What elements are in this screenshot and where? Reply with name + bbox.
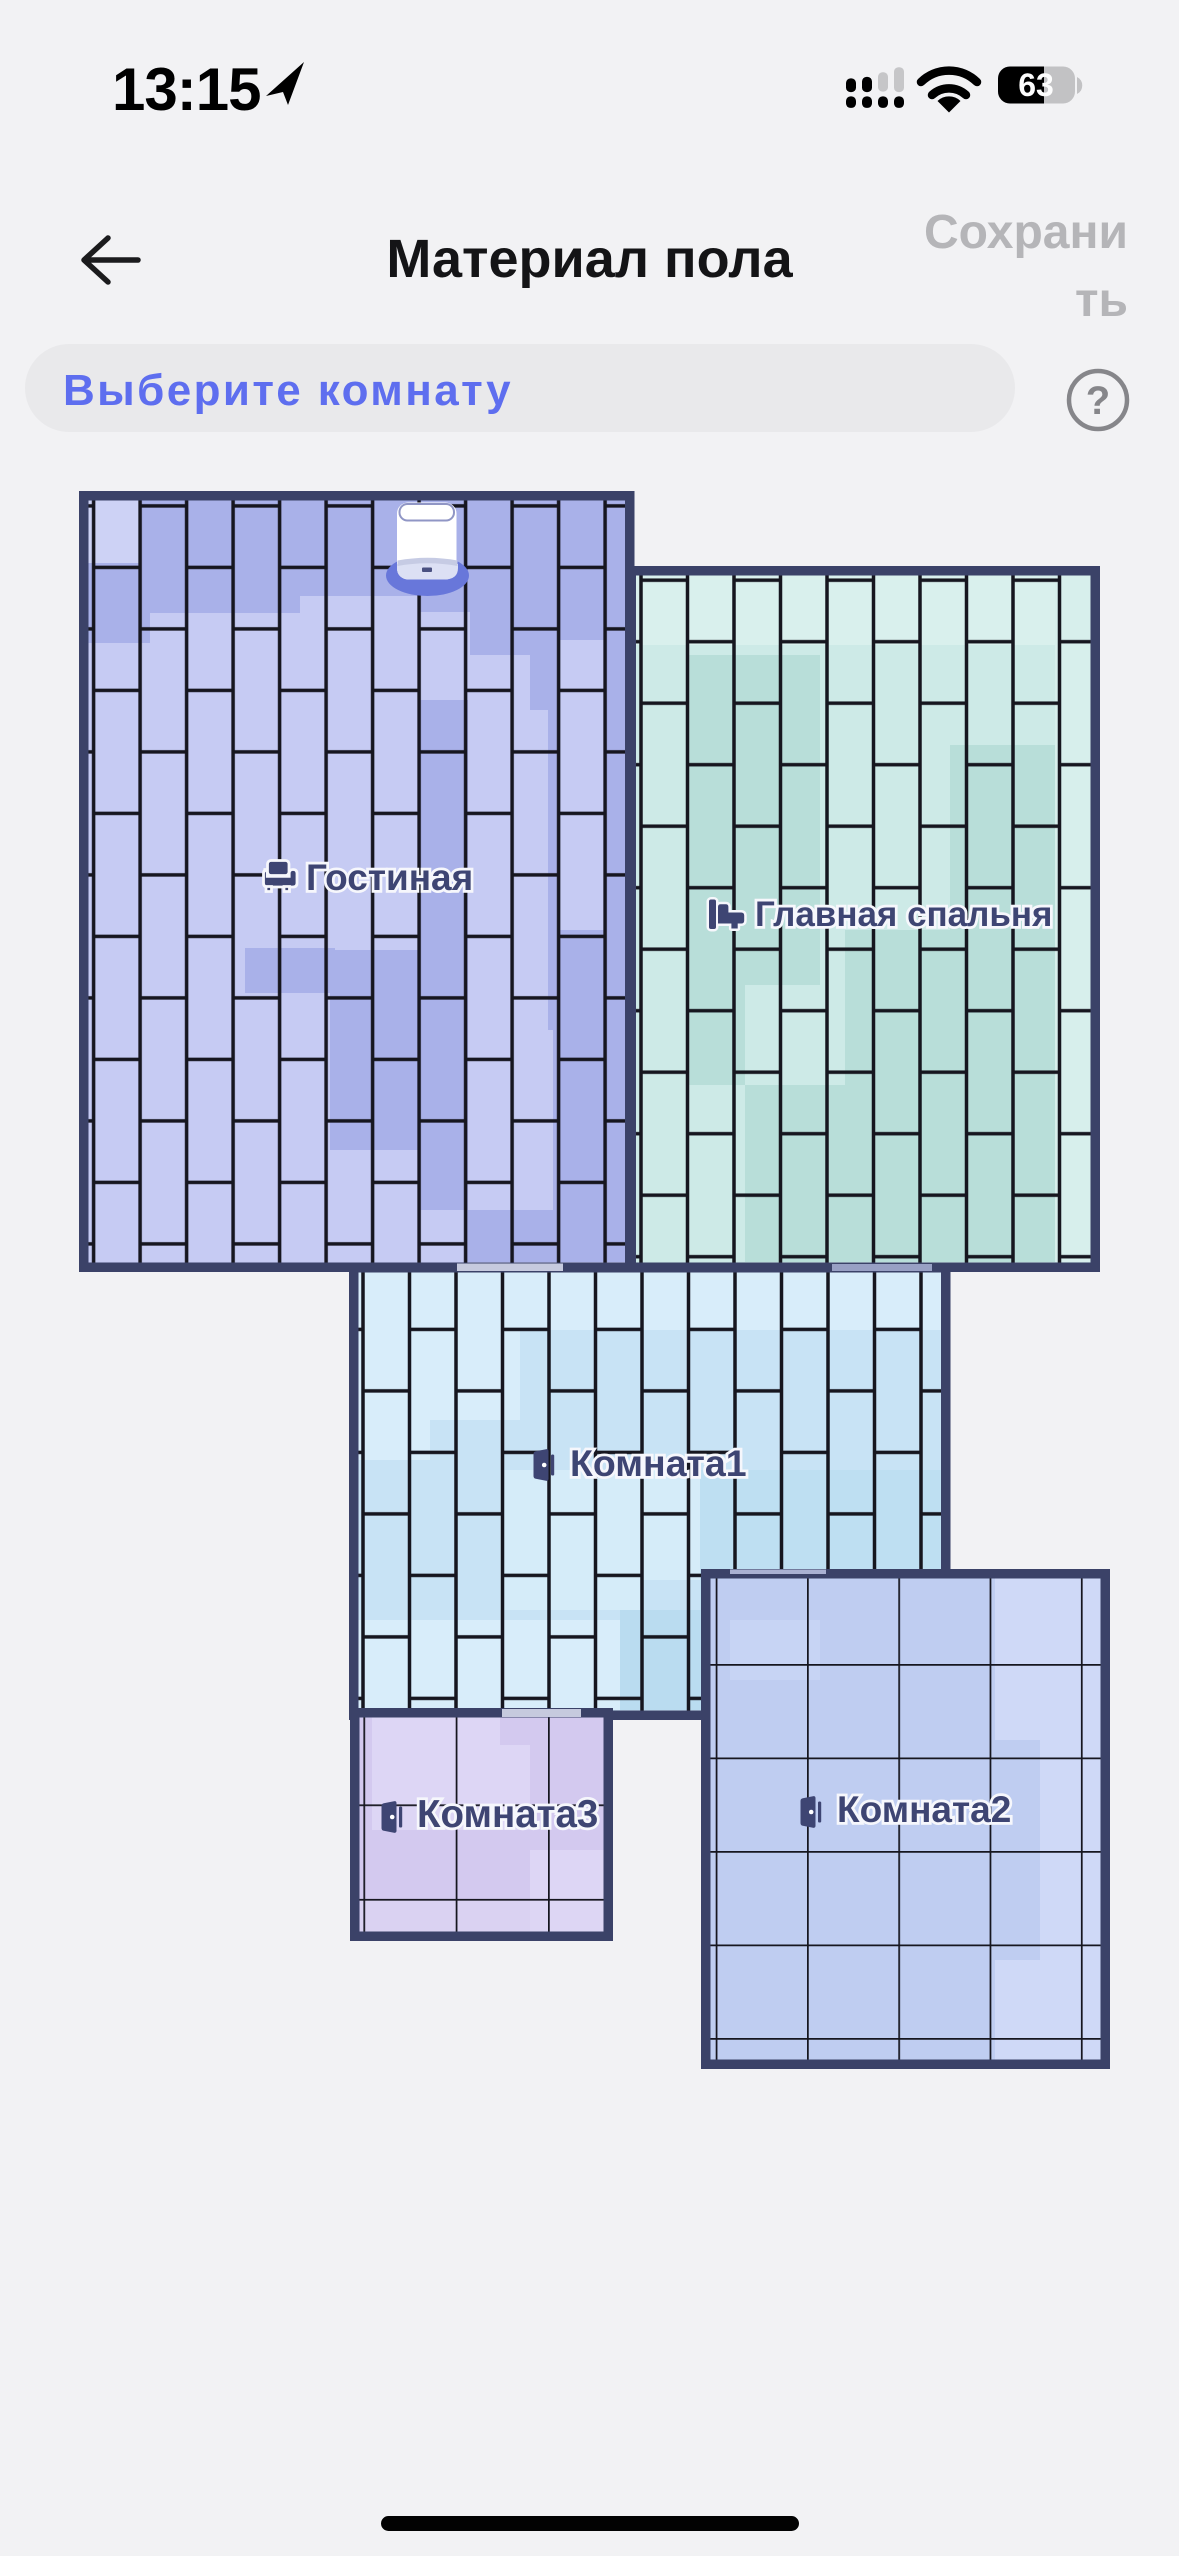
svg-text:Главная спальня: Главная спальня — [755, 895, 1052, 934]
svg-text:Комната1: Комната1 — [570, 1442, 747, 1484]
svg-text:Комната2: Комната2 — [837, 1789, 1011, 1830]
svg-text:Комната3: Комната3 — [417, 1793, 598, 1836]
svg-text:Гостиная: Гостиная — [306, 857, 473, 898]
